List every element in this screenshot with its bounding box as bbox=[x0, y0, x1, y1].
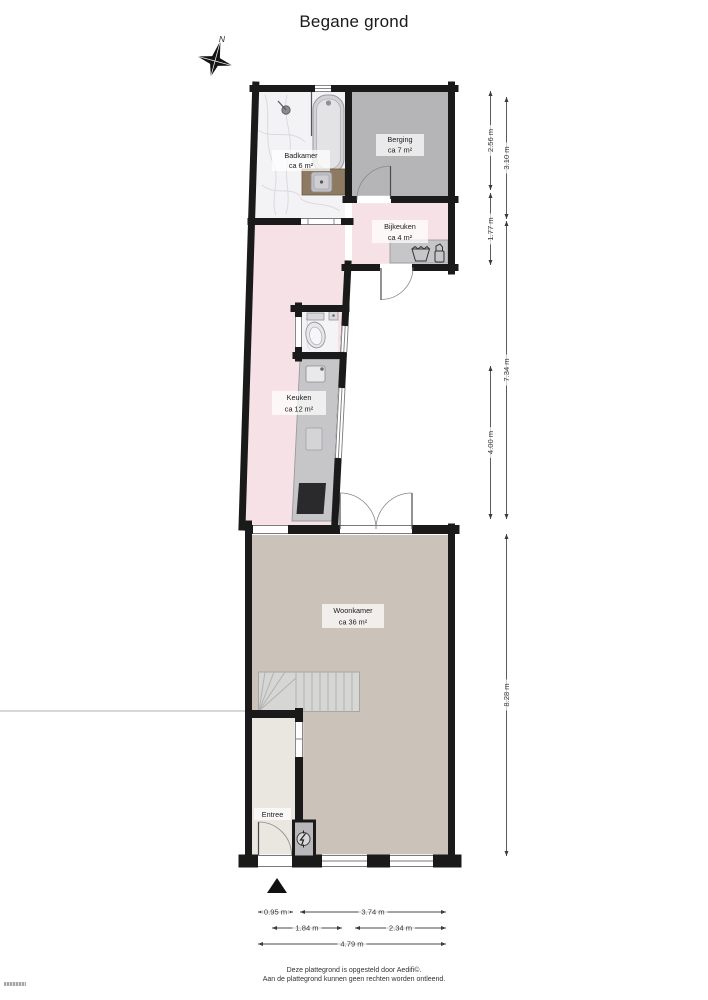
door-toilet bbox=[296, 317, 302, 347]
washer-counter bbox=[390, 240, 448, 263]
label-bijkeuken: Bijkeuken bbox=[384, 222, 416, 231]
watermark-mark bbox=[4, 982, 26, 986]
svg-text:4.79 m: 4.79 m bbox=[340, 940, 363, 949]
svg-text:7.34 m: 7.34 m bbox=[502, 358, 511, 381]
label-keuken: Keuken bbox=[287, 393, 312, 402]
svg-text:3.10 m: 3.10 m bbox=[502, 146, 511, 169]
room-floors bbox=[242, 92, 449, 855]
svg-text:8.28 m: 8.28 m bbox=[502, 683, 511, 706]
meter-cupboard bbox=[294, 821, 315, 857]
door-badkamer bbox=[301, 219, 341, 225]
label-badkamer: Badkamer bbox=[284, 151, 318, 160]
window-badkamer-top bbox=[315, 86, 331, 92]
toilet-sink bbox=[329, 311, 338, 320]
label-entree: Entree bbox=[262, 810, 284, 819]
svg-text:3.74 m: 3.74 m bbox=[361, 908, 384, 917]
dimension-2-34: 2.34 m bbox=[355, 923, 446, 933]
dimension-1-84: 1.84 m bbox=[272, 923, 342, 933]
compass-rose: N bbox=[193, 34, 237, 81]
stairs bbox=[0, 672, 360, 712]
svg-text:2.34 m: 2.34 m bbox=[389, 924, 412, 933]
svg-text:2.56 m: 2.56 m bbox=[486, 129, 495, 152]
vanity-sink bbox=[302, 169, 345, 195]
door-bijkeuken-exterior bbox=[380, 268, 413, 301]
window-keuken-upper bbox=[341, 326, 348, 352]
window-woonkamer-left bbox=[322, 856, 367, 867]
north-label: N bbox=[219, 34, 226, 44]
dimension-2-56: 2.56 m bbox=[485, 91, 496, 190]
footer-line-1: Deze plattegrond is opgesteld door Aedif… bbox=[0, 966, 708, 975]
label-keuken-area: ca 12 m² bbox=[285, 405, 314, 414]
footer-disclaimer: Deze plattegrond is opgesteld door Aedif… bbox=[0, 966, 708, 984]
floorplan-drawing: Badkamer ca 6 m² Berging ca 7 m² Bijkeuk… bbox=[0, 0, 708, 1000]
label-woonkamer: Woonkamer bbox=[333, 606, 373, 615]
dimension-4-79: 4.79 m bbox=[258, 939, 446, 949]
label-berging-area: ca 7 m² bbox=[388, 146, 413, 155]
svg-text:1.84 m: 1.84 m bbox=[295, 924, 318, 933]
dimension-1-77: 1.77 m bbox=[485, 193, 496, 265]
svg-text:4.00 m: 4.00 m bbox=[486, 431, 495, 454]
dimension-7-34: 7.34 m bbox=[501, 221, 512, 519]
label-berging: Berging bbox=[387, 135, 412, 144]
window-woonkamer-right bbox=[390, 856, 433, 867]
stove bbox=[297, 483, 327, 514]
label-woonkamer-area: ca 36 m² bbox=[339, 618, 368, 627]
svg-text:1.77 m: 1.77 m bbox=[486, 217, 495, 240]
french-doors-woonkamer bbox=[340, 493, 412, 534]
floorplan-page: Begane grond bbox=[0, 0, 708, 1000]
label-bijkeuken-area: ca 4 m² bbox=[388, 233, 413, 242]
dimension-8-28: 8.28 m bbox=[501, 534, 512, 856]
dimension-3-74: 3.74 m bbox=[300, 907, 446, 917]
dimension-0-95: 0.95 m bbox=[258, 907, 293, 917]
footer-line-2: Aan de plattegrond kunnen geen rechten w… bbox=[0, 975, 708, 984]
entrance-marker-icon bbox=[267, 878, 287, 893]
svg-text:0.95 m: 0.95 m bbox=[264, 908, 287, 917]
opening-keuken-woonkamer bbox=[253, 526, 288, 534]
bathtub-faucet-icon bbox=[326, 100, 331, 105]
dimension-4-00: 4.00 m bbox=[485, 366, 496, 519]
label-badkamer-area: ca 6 m² bbox=[289, 161, 314, 170]
opening-entree-woonkamer bbox=[296, 722, 303, 757]
dimension-3-10: 3.10 m bbox=[501, 97, 512, 219]
